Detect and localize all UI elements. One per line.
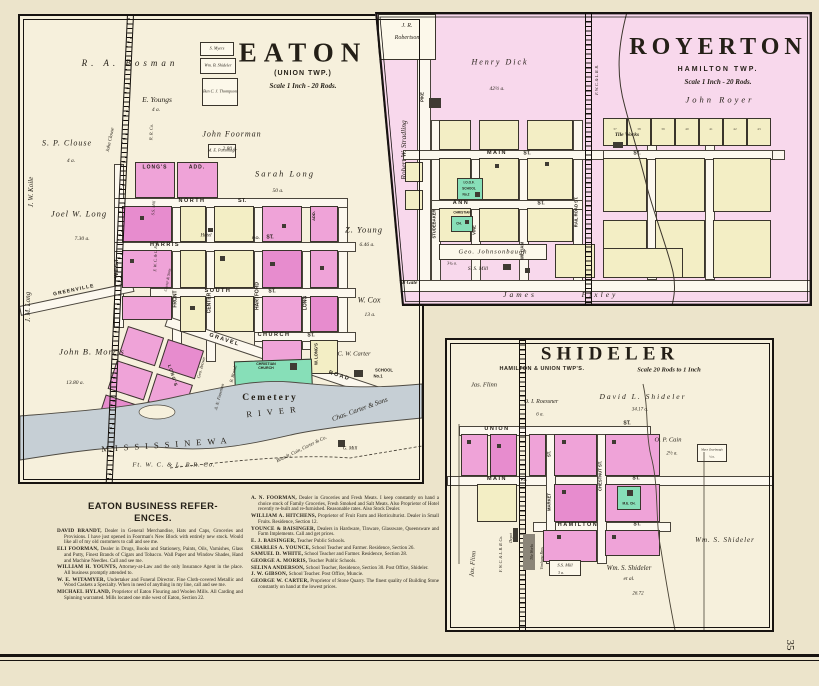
building-marker (190, 306, 195, 310)
dick-label: Henry Dick (471, 59, 528, 68)
ss-mill-acres: 3 a. (558, 571, 564, 575)
business-name: GEORGE W. CARTER, (251, 578, 309, 584)
street-label-north: NORTH (178, 199, 205, 205)
royerton-ss-mill-label: S. S. Mill (468, 267, 488, 273)
business-entry: DAVID BRANDT, Dealer in General Merchand… (57, 529, 243, 546)
street-label-front: FRONT (173, 290, 178, 307)
vine-label: VINE (473, 225, 478, 235)
building-marker (627, 490, 633, 496)
building-marker (354, 370, 363, 377)
johnsonbaugh-label: Geo. Johnsonbaugh (459, 248, 528, 255)
street-label-church-st: ST. (307, 333, 314, 338)
business-heading-line2: ENCES. (58, 513, 248, 524)
building-marker (208, 228, 213, 232)
shideler-map-panel: SHIDELER HAMILTON & UNION TWP'S. Scale 2… (445, 338, 774, 632)
johnsonbaugh-acres: 3¾ a. (447, 262, 457, 267)
pixley-label: Pixley (582, 291, 619, 299)
royerton-title: ROYERTON (629, 35, 806, 61)
building-marker (562, 490, 566, 494)
lot-label-wb-shideler: Wm. B. Shideler (204, 64, 231, 69)
cain-label: O. P. Cain (655, 436, 682, 443)
hotel-label: Hotel (200, 233, 211, 238)
wm-shideler-label-1: Wm. S. Shideler (695, 537, 755, 545)
union-st-suffix: ST. (623, 421, 630, 426)
add-vertical-label: ADD. (312, 211, 316, 221)
business-entry: A. N. FOORMAN, Dealer in Groceries and F… (251, 496, 439, 513)
east-st-label: ST. (633, 151, 640, 156)
business-entry: WILLIAM A. HITCHENS, Proprietor of Fruit… (251, 514, 439, 525)
business-entry: MICHAEL HYLAND, Proprietor of Eaton Flou… (57, 590, 243, 601)
zearbaugh-label: Mary Zearbaugh (701, 448, 723, 451)
building-marker (612, 535, 616, 539)
royerton-christian-label: CHRISTIAN (453, 211, 470, 214)
business-text: Teacher Public Schools. (297, 539, 345, 544)
school-number-label: No.1 (373, 375, 382, 380)
business-entry: YOUNCE & BAISINGER, Dealers in Hardware,… (251, 527, 439, 538)
street-label-north-st: ST. (238, 199, 246, 205)
lot-label-thompson: Ben C. J. Thompson (203, 90, 237, 95)
building-marker (282, 224, 286, 228)
business-name: J. W. GIBSON, (251, 571, 287, 577)
business-name: A. N. FOORMAN, (251, 495, 297, 501)
railroad-co-vertical-label: R. R. Co. (149, 124, 154, 141)
etal-label: et al. (624, 577, 635, 583)
hamilton-st-label: HAMILTON (558, 523, 599, 529)
acres-label: 26.72 (632, 591, 643, 596)
lot-number: 41 (709, 128, 712, 132)
farm-label-foorman: John Foorman (202, 131, 261, 140)
farm-label-jm-long: J. M. Long (25, 292, 33, 322)
ioof-label: I.O.O.F. (464, 181, 475, 184)
building-marker (467, 440, 471, 444)
royerton-township: HAMILTON TWP. (678, 66, 759, 74)
farm-label-cw-carter: C. W. Carter (338, 350, 371, 357)
street-label-harris-st: ST. (266, 235, 273, 240)
me-church-label: M.E. CH. (623, 502, 636, 505)
eaton-scale: Scale 1 Inch - 20 Rods. (270, 83, 337, 91)
farm-label-joel-long: Joel W. Long (51, 209, 107, 218)
tile-works-label: Tile Works (530, 544, 534, 560)
union-st-label: UNION (484, 427, 509, 433)
flinn-label: Jas. Flinn (471, 381, 497, 388)
royerton-railroad-track (585, 12, 592, 306)
building-marker (613, 142, 623, 148)
royerton-map-panel: ROYERTON HAMILTON TWP. Scale 1 Inch - 20… (375, 12, 812, 306)
street-label-center: CENTER (207, 293, 212, 314)
farm-label-bosman: R. A. Bosman (82, 59, 179, 69)
bottom-rule-thin (0, 660, 819, 661)
building-marker (465, 220, 469, 224)
business-name: W. E. WITAMYER, (57, 577, 105, 583)
business-text: School Teacher and Farmer. Residence, Se… (304, 552, 407, 557)
royerton-school-no: No.2 (463, 193, 470, 196)
building-marker (220, 256, 225, 261)
building-marker (140, 216, 144, 220)
cain-acres: 2½ a. (666, 451, 677, 456)
vinshang-bros-label: Vinshang Bros. (540, 547, 544, 570)
business-heading-line1: EATON BUSINESS REFER- (58, 501, 248, 512)
farm-acres-morris: 13.80 a. (66, 381, 84, 387)
lot-number: 39 (661, 128, 664, 132)
street-label-south-st: ST. (268, 289, 275, 294)
farm-acres-cox: 13 a. (365, 313, 376, 319)
ann-st-suffix: ST. (537, 201, 544, 206)
railroad-co-label: Ft. W. C. & L. R.R. Co. (132, 461, 215, 468)
shideler-townships: HAMILTON & UNION TWP'S. (499, 367, 584, 373)
shideler-po-label: P.O. (521, 479, 528, 483)
business-name: E. J. BAISINGER, (251, 538, 296, 544)
main-st-label: MAIN (487, 477, 507, 483)
business-text: Teacher Public Schools. (308, 559, 356, 564)
david-shideler-label: David L. Shideler (599, 393, 686, 401)
building-marker (495, 164, 499, 168)
shideler-rr-label: F. W. C. & L. R. R. Co. (499, 536, 503, 572)
main-st-suffix: ST. (523, 151, 530, 156)
railroad-st-label: RAIL ROAD ST. (575, 197, 580, 227)
w-longs-label: W. LONG'S (315, 343, 320, 365)
cemetery-label: Cemetery (242, 393, 298, 403)
lot-label-parsonage: M. E. Parsonage (208, 149, 236, 154)
business-entry: ELI FOORMAN, Dealer in Drugs, Books and … (57, 547, 243, 564)
royerton-ch-label: CH. (456, 222, 462, 225)
street-label-west: WEST (115, 258, 121, 278)
studebaker-label: STUDEBAKER (433, 209, 438, 238)
james-label: James (503, 291, 537, 299)
business-name: WILLIAM H. YOUNTS, (57, 564, 117, 570)
business-text: School Teacher and Farmer. Residence, Se… (312, 546, 415, 551)
farm-acres-clouse: 4 a. (67, 159, 75, 165)
eaton-title: EATON (239, 38, 368, 67)
atlas-page: EATON (UNION TWP.) Scale 1 Inch - 20 Rod… (0, 0, 819, 686)
building-marker (612, 440, 616, 444)
building-marker (545, 162, 549, 166)
royer-label: John Royer (686, 95, 755, 104)
building-marker (429, 98, 441, 108)
business-entry: GEORGE W. CARTER, Proprietor of Stone Qu… (251, 579, 439, 590)
farm-label-youngs: E. Youngs (142, 96, 172, 104)
street-label-church: CHURCH (258, 333, 291, 339)
chestnut-st-label: CHESTNUT ST. (599, 461, 604, 491)
business-name: SELINA ANDERSON, (251, 565, 305, 571)
christian-church-label: CHRISTIAN CHURCH (249, 363, 283, 371)
lot-label-myers: S. Myers (210, 47, 225, 52)
shideler-scale: Scale 20 Rods to 1 Inch (637, 366, 700, 373)
building-marker (513, 528, 518, 542)
business-text: School Teacher, Residence, Section 30. P… (306, 566, 429, 571)
building-marker (557, 535, 561, 539)
lot-number: 37 (613, 128, 616, 132)
royerton-scale: Scale 1 Inch - 20 Rods. (685, 79, 752, 87)
farm-label-cox: W. Cox (358, 297, 381, 306)
dick-acres: 42½ a. (489, 87, 504, 93)
business-text: School Teacher. Post Office, Muncie. (289, 572, 364, 577)
david-shideler-acres: 34.17 a. (632, 407, 648, 412)
business-column-left: DAVID BRANDT, Dealer in General Merchand… (57, 529, 243, 602)
main-st-label: MAIN (487, 151, 507, 157)
farm-label-clouse: S. P. Clouse (42, 140, 92, 149)
farm-label-morris: John B. Morris (59, 347, 125, 356)
add-label: ADD. (189, 165, 205, 170)
business-entry: WILLIAM H. YOUNTS, Attorney-at-Law and t… (57, 565, 243, 576)
lot-number: 43 (757, 128, 760, 132)
label-g-mill: G. Mill (343, 446, 357, 451)
business-name: GEORGE A. MORRIS, (251, 558, 307, 564)
business-column-right: A. N. FOORMAN, Dealer in Groceries and F… (251, 496, 439, 592)
lot-number: 40 (685, 128, 688, 132)
wm-shideler-label-2: Wm. S. Shideler (607, 565, 652, 573)
building-marker (290, 363, 297, 370)
business-name: WILLIAM A. HITCHENS, (251, 513, 316, 519)
market-st-label: MARKET (548, 493, 553, 511)
building-marker (270, 262, 275, 266)
school-label: SCHOOL (375, 369, 393, 374)
business-name: ELI FOORMAN, (57, 546, 99, 552)
depot-label: Depot (509, 533, 513, 543)
building-marker (503, 264, 511, 270)
farm-acres-joel-long: 7.30 a. (74, 237, 89, 243)
farm-label-sarah-long: Sarah Long (255, 169, 315, 178)
farm-label-koile: J. W. Koile (28, 177, 36, 207)
building-marker (475, 192, 480, 197)
ss-mill-label: S.S. Mill (557, 564, 572, 569)
main-st-suffix: ST. (632, 476, 639, 481)
roessner-acres: 6 a. (536, 412, 544, 417)
farm-acres-z-young: 6.46 a. (359, 243, 374, 249)
farm-acres-youngs: 4 a. (152, 108, 160, 114)
zearbaugh-acres: ¼ a. (709, 455, 715, 458)
roessner-label: O. I. Roessner (524, 399, 558, 405)
farm-acres-sarah-long: 50 a. (273, 189, 284, 195)
building-marker (130, 259, 134, 263)
lot-number: 38 (637, 128, 640, 132)
royerton-rr-label: F. W. C. & L. R. R. (595, 65, 599, 95)
tile-works-label: Tile Works (615, 133, 639, 139)
eaton-township: (UNION TWP.) (274, 70, 332, 78)
building-marker (562, 440, 566, 444)
creek-line (643, 384, 675, 630)
cross-st-label: ST. (548, 451, 553, 457)
business-entry: W. E. WITAMYER, Undertaker and Funeral D… (57, 578, 243, 589)
business-name: DAVID BRANDT, (57, 528, 102, 534)
shideler-title: SHIDELER (541, 345, 679, 366)
business-name: CHARLES A. YOUNCE, (251, 545, 311, 551)
building-marker (320, 266, 324, 270)
street-label-long: LONG (303, 296, 308, 310)
hamilton-st-suffix: ST. (633, 522, 640, 527)
building-marker (525, 268, 530, 273)
business-name: MICHAEL HYLAND, (57, 589, 110, 595)
eaton-map-panel: EATON (UNION TWP.) Scale 1 Inch - 20 Rod… (18, 14, 424, 484)
river-island (139, 405, 175, 419)
lot-number: 42 (733, 128, 736, 132)
post-office-label: P.O. (252, 236, 260, 240)
shideler-railroad-track (519, 340, 526, 630)
page-number: 35 (783, 640, 795, 651)
farm-label-z-young: Z. Young (345, 225, 383, 234)
longs-add-label: LONG'S (143, 165, 168, 170)
business-name: SAMUEL D. WHITE, (251, 551, 303, 557)
ann-st-label: ANN (453, 201, 469, 207)
building-marker (497, 444, 501, 448)
royerton-school-label: SCHOOL (462, 187, 476, 190)
business-name: YOUNCE & BAISINGER, (251, 526, 315, 532)
bottom-rule-thick (0, 654, 819, 657)
street-label-hartford: HARTFORD (255, 282, 260, 310)
